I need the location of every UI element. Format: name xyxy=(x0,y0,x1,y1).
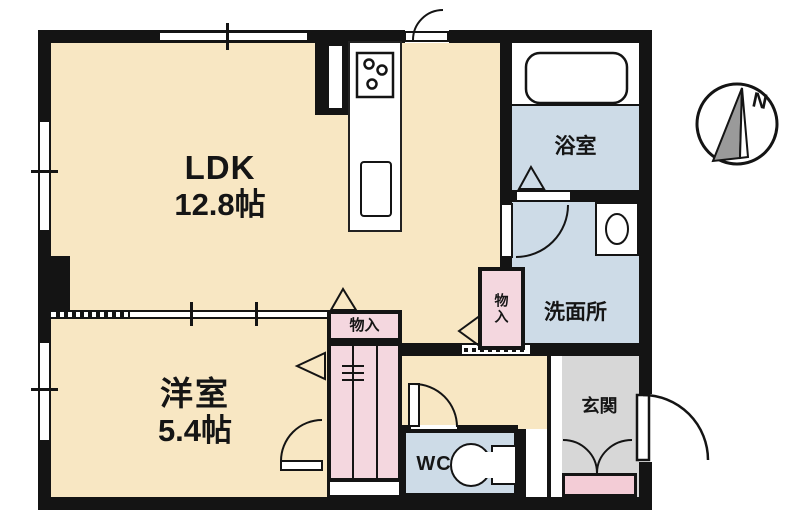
bathtub-zone xyxy=(512,43,639,106)
closet-bedroom-main xyxy=(327,342,402,482)
room-washroom-label: 洗面所 xyxy=(512,298,639,328)
room-western-label: 洋室 5.4帖 xyxy=(80,362,310,462)
window-top-tick xyxy=(226,23,229,50)
room-bathroom-label: 浴室 xyxy=(512,130,639,164)
compass-north-label: N xyxy=(750,88,770,114)
entrance-door-opening xyxy=(639,394,652,462)
room-ldk-label: LDK 12.8帖 xyxy=(100,138,340,233)
ldk-name: LDK xyxy=(185,149,256,187)
partition-slider-track xyxy=(56,312,130,317)
closet-bedroom-label: 物入 xyxy=(349,317,379,334)
kitchen-stub-slot xyxy=(329,46,342,108)
wall-hall-entrance-divider xyxy=(547,356,551,497)
wall-bath-left xyxy=(500,43,512,203)
washroom-door-opening xyxy=(500,204,512,258)
closet-bottom-strip xyxy=(327,482,402,498)
closet-bedroom-upper: 物入 xyxy=(327,310,402,342)
closet-hall-label: 物入 xyxy=(493,293,509,325)
western-area: 5.4帖 xyxy=(158,413,232,449)
wall-wc-right xyxy=(518,429,526,497)
closet-hinge-mark-1 xyxy=(342,365,364,367)
closet-panel-line-2 xyxy=(376,346,378,478)
shoe-cabinet xyxy=(562,473,637,497)
room-wc-label: WC xyxy=(408,449,460,479)
bath-divider-line xyxy=(512,104,639,106)
wall-bottom xyxy=(38,497,652,510)
compass-needle-icon xyxy=(713,88,742,161)
window-left-ldk xyxy=(38,122,51,230)
kitchen-door-opening xyxy=(405,30,449,43)
window-top xyxy=(160,31,307,42)
window-left-bedroom-tick xyxy=(31,388,58,391)
window-left-ldk-tick xyxy=(31,170,58,173)
ldk-area: 12.8帖 xyxy=(174,187,265,223)
nook-right-of-wc xyxy=(526,429,547,497)
compass-icon xyxy=(697,84,777,164)
wall-left-jog xyxy=(38,256,70,316)
room-entrance-label: 玄関 xyxy=(560,392,639,420)
partition-tick-2 xyxy=(255,302,258,326)
kitchen-counter xyxy=(348,41,402,232)
western-name: 洋室 xyxy=(160,375,230,413)
closet-hinge-mark-2 xyxy=(342,372,364,374)
bath-door-opening xyxy=(517,190,570,202)
partition-tick-1 xyxy=(190,302,193,326)
entrance-step xyxy=(551,356,562,497)
window-left-bedroom xyxy=(38,343,51,440)
closet-hinge-mark-3 xyxy=(342,379,364,381)
floor-plan-canvas: 物入 物入 LDK 12.8帖 洋室 5.4帖 浴室 洗面所 WC 玄関 xyxy=(0,0,800,530)
